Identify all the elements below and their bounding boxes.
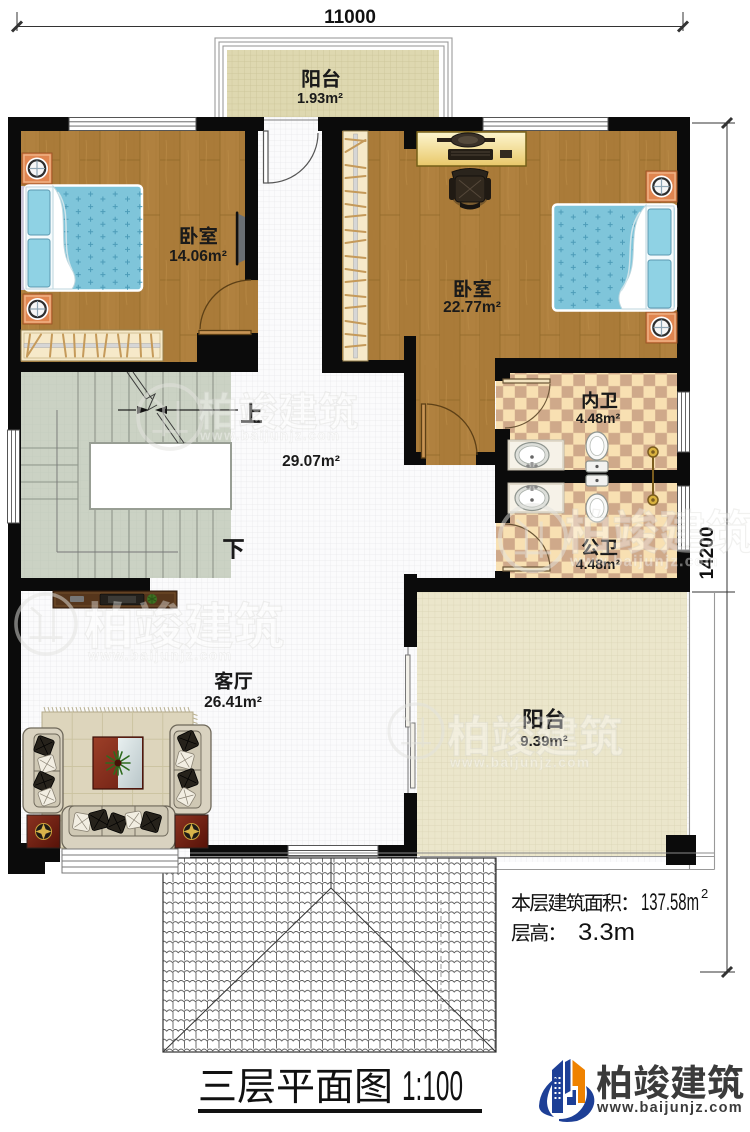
svg-text:www.baijunjz.com: www.baijunjz.com (87, 647, 233, 663)
svg-text:26.41m²: 26.41m² (204, 694, 262, 711)
svg-text:www.baijunjz.com: www.baijunjz.com (199, 428, 341, 443)
svg-text:3.3m: 3.3m (578, 919, 635, 946)
svg-text:22.77m²: 22.77m² (443, 299, 501, 316)
svg-text:www.baijunjz.com: www.baijunjz.com (596, 1100, 743, 1116)
svg-text:137.58m: 137.58m (641, 889, 699, 916)
svg-text:1:100: 1:100 (402, 1062, 463, 1109)
svg-text:4.48m²: 4.48m² (576, 410, 621, 426)
svg-text:www.baijunjz.com: www.baijunjz.com (569, 554, 719, 570)
svg-text:2: 2 (701, 886, 708, 901)
svg-text:11000: 11000 (324, 7, 376, 28)
svg-text:www.baijunjz.com: www.baijunjz.com (449, 755, 591, 770)
svg-text:14.06m²: 14.06m² (169, 248, 227, 265)
svg-text:1.93m²: 1.93m² (297, 91, 343, 107)
svg-text:29.07m²: 29.07m² (282, 453, 340, 470)
